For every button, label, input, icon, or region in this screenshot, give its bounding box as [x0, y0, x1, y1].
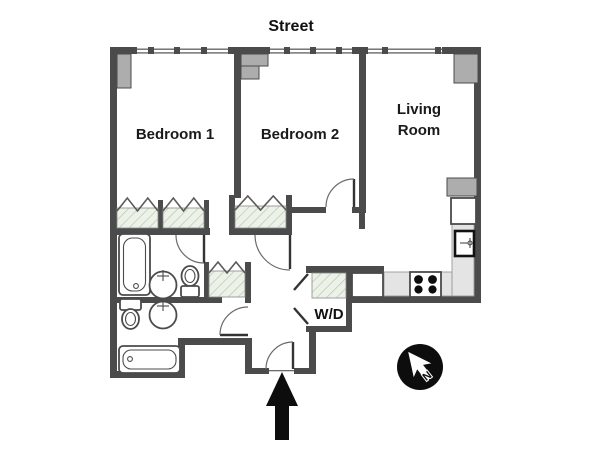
wd-door-leaf-bottom [294, 308, 308, 324]
bedroom1-label: Bedroom 1 [136, 126, 214, 143]
bedroom1-bedroom2-divider-wall [234, 54, 241, 198]
bedroom1-closet-left [117, 198, 158, 228]
sink-icon [150, 300, 177, 329]
street-window [137, 47, 442, 54]
hall-closet [209, 262, 245, 297]
stove-icon [410, 272, 441, 297]
bathroom2-door [220, 307, 248, 335]
bathtub-icon [119, 346, 180, 373]
bathroom2-fixtures [119, 299, 180, 373]
entry-threshold [269, 370, 294, 371]
floor-plan-page: Street Bedroom 1 Bedroom 2 Living Room [0, 0, 600, 450]
entry-arrow-icon [266, 372, 298, 440]
bathroom1-fixtures [119, 234, 199, 299]
kitchen [352, 198, 476, 297]
sink-icon [150, 270, 177, 299]
bedroom2-label: Bedroom 2 [261, 126, 339, 143]
wd-door-leaf-top [294, 274, 308, 290]
living-room-label-line1: Living [397, 101, 441, 118]
washer-dryer-label: W/D [314, 306, 343, 323]
entry-door [266, 342, 293, 369]
living-room-label-line2: Room [398, 122, 441, 139]
toilet-icon [181, 266, 199, 297]
bedroom2-door [326, 179, 354, 207]
street-label: Street [268, 18, 314, 35]
floor-plan: Street Bedroom 1 Bedroom 2 Living Room [0, 0, 600, 450]
bedroom2-living-divider-wall [359, 54, 366, 213]
cabinet-icon [352, 273, 383, 297]
bathtub-icon [119, 234, 150, 295]
hall-door [255, 235, 290, 270]
fridge-icon [451, 198, 476, 224]
bedroom1-closet-right [163, 198, 204, 228]
washer-dryer-closet: W/D [294, 273, 346, 324]
bedroom2-closet [235, 196, 286, 228]
toilet-icon [120, 299, 141, 329]
kitchen-sink-icon [455, 231, 474, 256]
compass-icon: N [397, 342, 443, 390]
bathroom1-door [176, 235, 204, 263]
